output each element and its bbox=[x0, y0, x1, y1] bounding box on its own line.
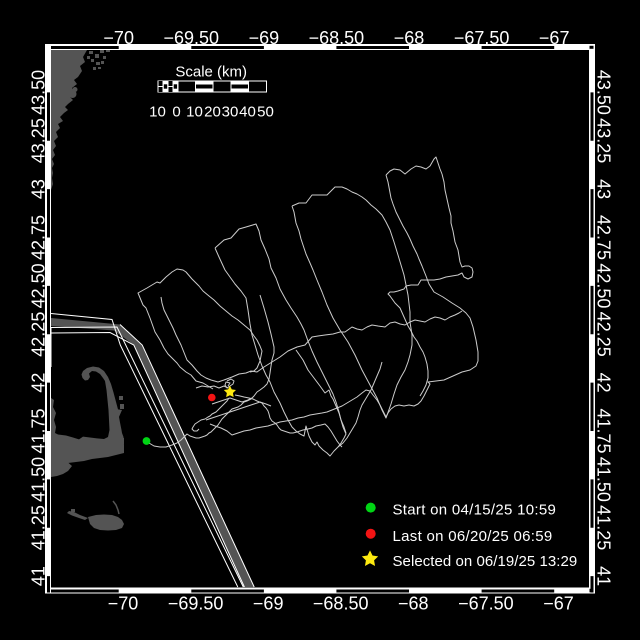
svg-text:−68: −68 bbox=[398, 594, 429, 614]
svg-text:−68.50: −68.50 bbox=[313, 594, 369, 614]
svg-text:Start on 04/15/25 10:59: Start on 04/15/25 10:59 bbox=[393, 501, 557, 518]
svg-text:41.25: 41.25 bbox=[29, 505, 49, 550]
svg-text:42: 42 bbox=[29, 373, 49, 393]
svg-text:43.25: 43.25 bbox=[594, 118, 614, 163]
svg-text:10: 10 bbox=[149, 104, 166, 121]
svg-text:−67: −67 bbox=[539, 28, 570, 48]
svg-text:−69: −69 bbox=[253, 594, 284, 614]
svg-text:−69.50: −69.50 bbox=[168, 594, 224, 614]
svg-text:−70: −70 bbox=[103, 28, 134, 48]
svg-text:−68: −68 bbox=[394, 28, 425, 48]
svg-text:−67.50: −67.50 bbox=[454, 28, 510, 48]
svg-text:Last on 06/20/25 06:59: Last on 06/20/25 06:59 bbox=[393, 528, 553, 545]
svg-text:42: 42 bbox=[594, 373, 614, 393]
svg-text:42.50: 42.50 bbox=[594, 263, 614, 308]
svg-text:40: 40 bbox=[239, 104, 256, 121]
svg-text:43.50: 43.50 bbox=[594, 70, 614, 115]
svg-text:42.25: 42.25 bbox=[29, 312, 49, 357]
svg-text:−68.50: −68.50 bbox=[309, 28, 365, 48]
svg-text:−69.50: −69.50 bbox=[164, 28, 220, 48]
svg-text:−67: −67 bbox=[543, 594, 574, 614]
svg-text:41.50: 41.50 bbox=[594, 457, 614, 502]
svg-text:42.25: 42.25 bbox=[594, 312, 614, 357]
svg-text:50: 50 bbox=[257, 104, 274, 121]
svg-text:−69: −69 bbox=[249, 28, 280, 48]
svg-text:41: 41 bbox=[29, 566, 49, 586]
svg-text:−67.50: −67.50 bbox=[458, 594, 514, 614]
svg-text:Selected on 06/19/25 13:29: Selected on 06/19/25 13:29 bbox=[393, 553, 578, 570]
svg-text:43: 43 bbox=[594, 179, 614, 199]
svg-text:20: 20 bbox=[204, 104, 221, 121]
svg-text:−70: −70 bbox=[108, 594, 139, 614]
svg-text:10: 10 bbox=[186, 104, 203, 121]
svg-text:42.75: 42.75 bbox=[29, 215, 49, 260]
svg-text:41.25: 41.25 bbox=[594, 505, 614, 550]
svg-text:43.25: 43.25 bbox=[29, 118, 49, 163]
svg-text:41.75: 41.75 bbox=[29, 408, 49, 453]
svg-text:42.50: 42.50 bbox=[29, 263, 49, 308]
svg-text:42.75: 42.75 bbox=[594, 215, 614, 260]
svg-text:43.50: 43.50 bbox=[29, 70, 49, 115]
svg-text:41.75: 41.75 bbox=[594, 408, 614, 453]
svg-text:Scale (km): Scale (km) bbox=[175, 64, 247, 81]
svg-text:43: 43 bbox=[29, 179, 49, 199]
svg-text:30: 30 bbox=[222, 104, 239, 121]
svg-text:41.50: 41.50 bbox=[29, 457, 49, 502]
svg-text:0: 0 bbox=[172, 104, 180, 121]
svg-text:41: 41 bbox=[594, 566, 614, 586]
